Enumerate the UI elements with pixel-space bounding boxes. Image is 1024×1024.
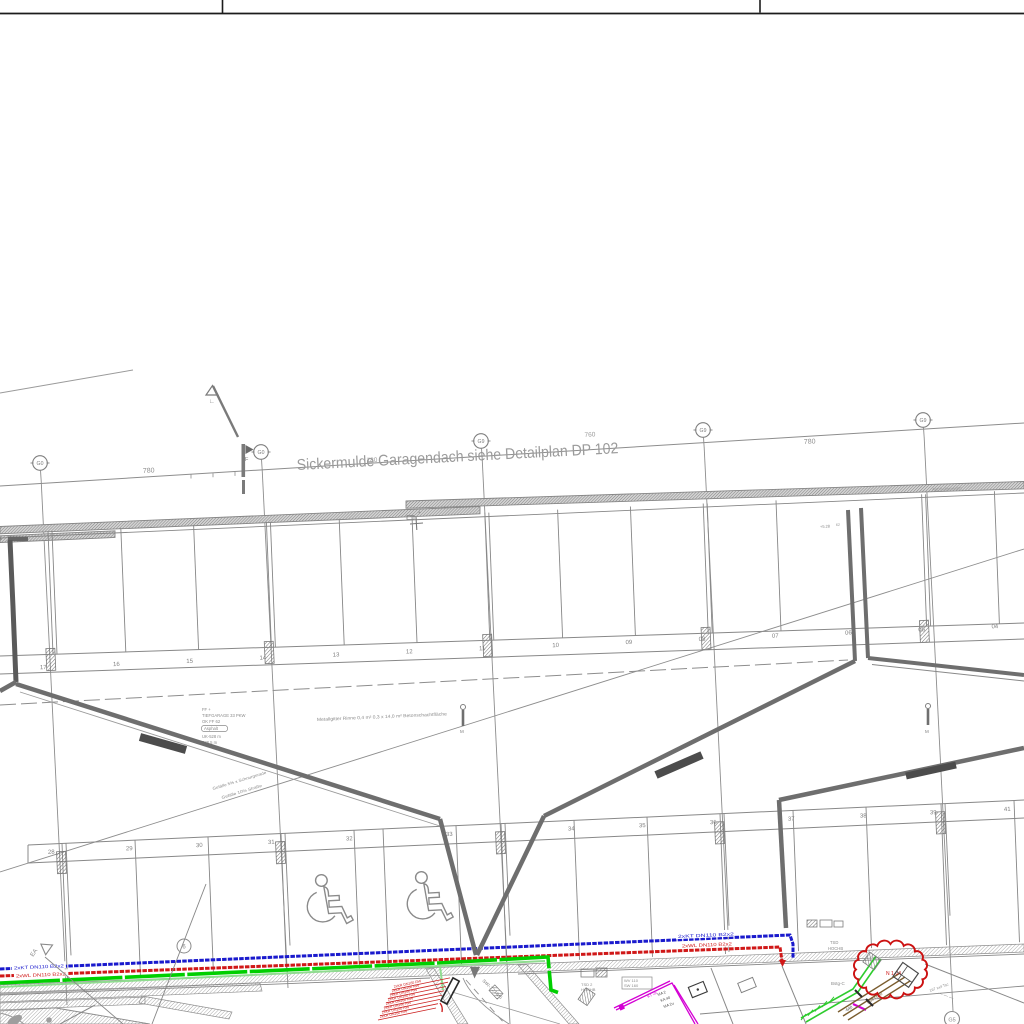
svg-text:+: + xyxy=(418,510,421,516)
svg-text:35: 35 xyxy=(639,823,647,829)
svg-text:OK FF 62: OK FF 62 xyxy=(202,719,221,724)
svg-text:11: 11 xyxy=(479,646,486,652)
svg-text:UK-528 m: UK-528 m xyxy=(202,734,221,739)
svg-text:29: 29 xyxy=(126,846,134,852)
svg-text:780: 780 xyxy=(366,457,378,465)
svg-text:TIEFGARAGE 33 PKW: TIEFGARAGE 33 PKW xyxy=(202,713,246,718)
svg-text:08: 08 xyxy=(699,637,707,643)
svg-text:+5.28: +5.28 xyxy=(820,524,831,529)
svg-text:31: 31 xyxy=(268,840,276,846)
svg-text:36: 36 xyxy=(710,820,718,826)
svg-text:09: 09 xyxy=(625,640,633,646)
svg-text:SW 160: SW 160 xyxy=(624,983,639,988)
svg-text:TSD: TSD xyxy=(830,940,838,945)
svg-text:HOCHB: HOCHB xyxy=(828,946,843,951)
svg-text:G0: G0 xyxy=(258,450,265,456)
svg-text:760: 760 xyxy=(584,431,596,439)
svg-text:x: x xyxy=(0,537,2,541)
svg-text:17: 17 xyxy=(40,665,48,671)
svg-text:06: 06 xyxy=(845,630,853,636)
svg-text:G5: G5 xyxy=(948,1018,955,1024)
svg-text:30: 30 xyxy=(196,843,204,849)
svg-text:G0: G0 xyxy=(37,461,44,467)
svg-text:28: 28 xyxy=(48,850,56,856)
svg-text:G9: G9 xyxy=(700,428,707,434)
svg-text:34: 34 xyxy=(568,826,576,832)
svg-text:10: 10 xyxy=(552,643,560,649)
svg-text:14: 14 xyxy=(259,655,267,661)
svg-text:07: 07 xyxy=(772,633,780,639)
svg-text:Bstg-C: Bstg-C xyxy=(831,981,846,986)
svg-text:62: 62 xyxy=(836,523,840,527)
svg-text:04: 04 xyxy=(991,624,999,630)
svg-text:∟: ∟ xyxy=(209,399,215,405)
svg-text:M: M xyxy=(460,729,464,734)
svg-text:41: 41 xyxy=(1004,807,1012,813)
svg-text:Asphalt: Asphalt xyxy=(204,726,219,731)
svg-text:FF +: FF + xyxy=(202,707,211,712)
svg-text:38: 38 xyxy=(860,813,868,819)
svg-text:39: 39 xyxy=(930,810,938,816)
svg-text:15: 15 xyxy=(186,659,194,665)
svg-text:780: 780 xyxy=(804,438,816,446)
svg-text:05: 05 xyxy=(918,627,926,633)
svg-text:12: 12 xyxy=(406,649,414,655)
svg-text:13: 13 xyxy=(333,652,341,658)
svg-text:M: M xyxy=(925,729,929,734)
svg-text:G9: G9 xyxy=(920,418,927,424)
svg-text:16: 16 xyxy=(113,662,121,668)
svg-text:32: 32 xyxy=(346,836,354,842)
svg-text:37: 37 xyxy=(788,816,796,822)
svg-text:780: 780 xyxy=(143,467,155,475)
svg-text:G9: G9 xyxy=(478,439,485,445)
